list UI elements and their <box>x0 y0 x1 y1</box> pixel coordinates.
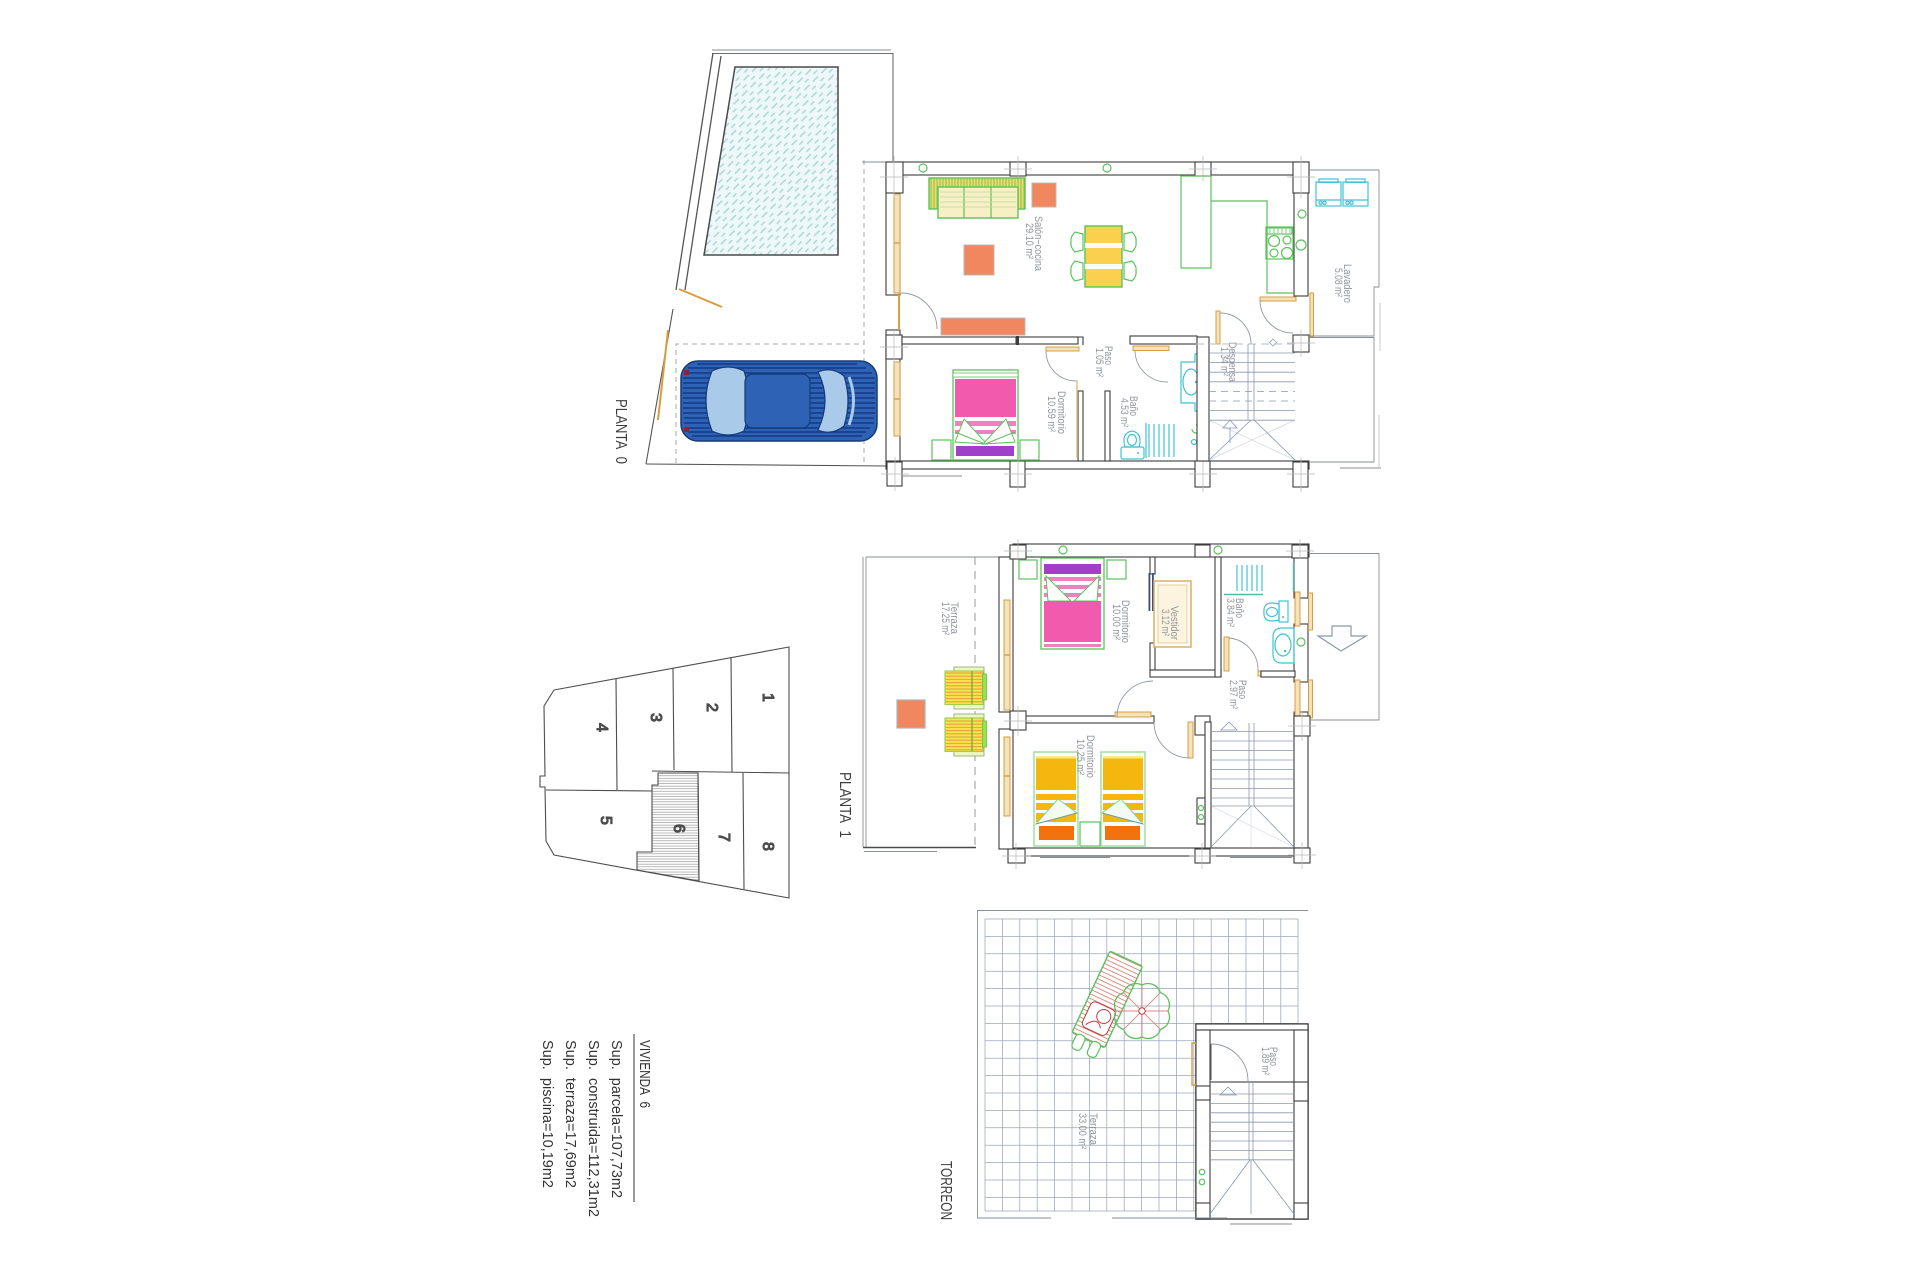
svg-text:5: 5 <box>597 816 614 825</box>
svg-text:29.10 m²: 29.10 m² <box>1023 223 1035 259</box>
svg-text:3.12 m²: 3.12 m² <box>1159 609 1171 636</box>
svg-text:10.59 m²: 10.59 m² <box>1045 396 1057 432</box>
svg-text:10.25 m²: 10.25 m² <box>1074 739 1086 775</box>
svg-text:3: 3 <box>647 713 664 722</box>
svg-text:17.25 m²: 17.25 m² <box>939 602 951 635</box>
svg-text:5.08 m²: 5.08 m² <box>1332 268 1344 297</box>
svg-text:3.84 m²: 3.84 m² <box>1224 598 1236 627</box>
svg-text:4.53 m²: 4.53 m² <box>1118 398 1130 427</box>
svg-text:Sup. construida=112,31m2: Sup. construida=112,31m2 <box>585 1040 602 1217</box>
svg-text:2.97 m²: 2.97 m² <box>1227 680 1239 709</box>
svg-text:4: 4 <box>593 723 610 732</box>
svg-text:Sup. piscina=10,19m2: Sup. piscina=10,19m2 <box>539 1040 556 1188</box>
svg-text:Sup. terraza=17,69m2: Sup. terraza=17,69m2 <box>562 1040 579 1188</box>
svg-text:Sup. parcela=107,73m2: Sup. parcela=107,73m2 <box>608 1040 625 1198</box>
svg-text:1.89 m²: 1.89 m² <box>1259 1047 1271 1075</box>
svg-text:PLANTA 0: PLANTA 0 <box>612 399 629 464</box>
svg-text:1: 1 <box>759 693 776 702</box>
svg-text:10.00 m²: 10.00 m² <box>1110 604 1122 640</box>
svg-text:6: 6 <box>670 824 687 833</box>
svg-text:7: 7 <box>715 833 732 842</box>
svg-text:33.00 m²: 33.00 m² <box>1076 1113 1088 1149</box>
svg-text:TORREON: TORREON <box>937 1161 954 1220</box>
svg-text:PLANTA 1: PLANTA 1 <box>836 772 853 838</box>
svg-text:8: 8 <box>759 842 776 851</box>
svg-text:VIVIENDA 6: VIVIENDA 6 <box>636 1040 653 1108</box>
svg-text:1.05 m²: 1.05 m² <box>1093 348 1105 377</box>
svg-text:2: 2 <box>703 703 720 712</box>
